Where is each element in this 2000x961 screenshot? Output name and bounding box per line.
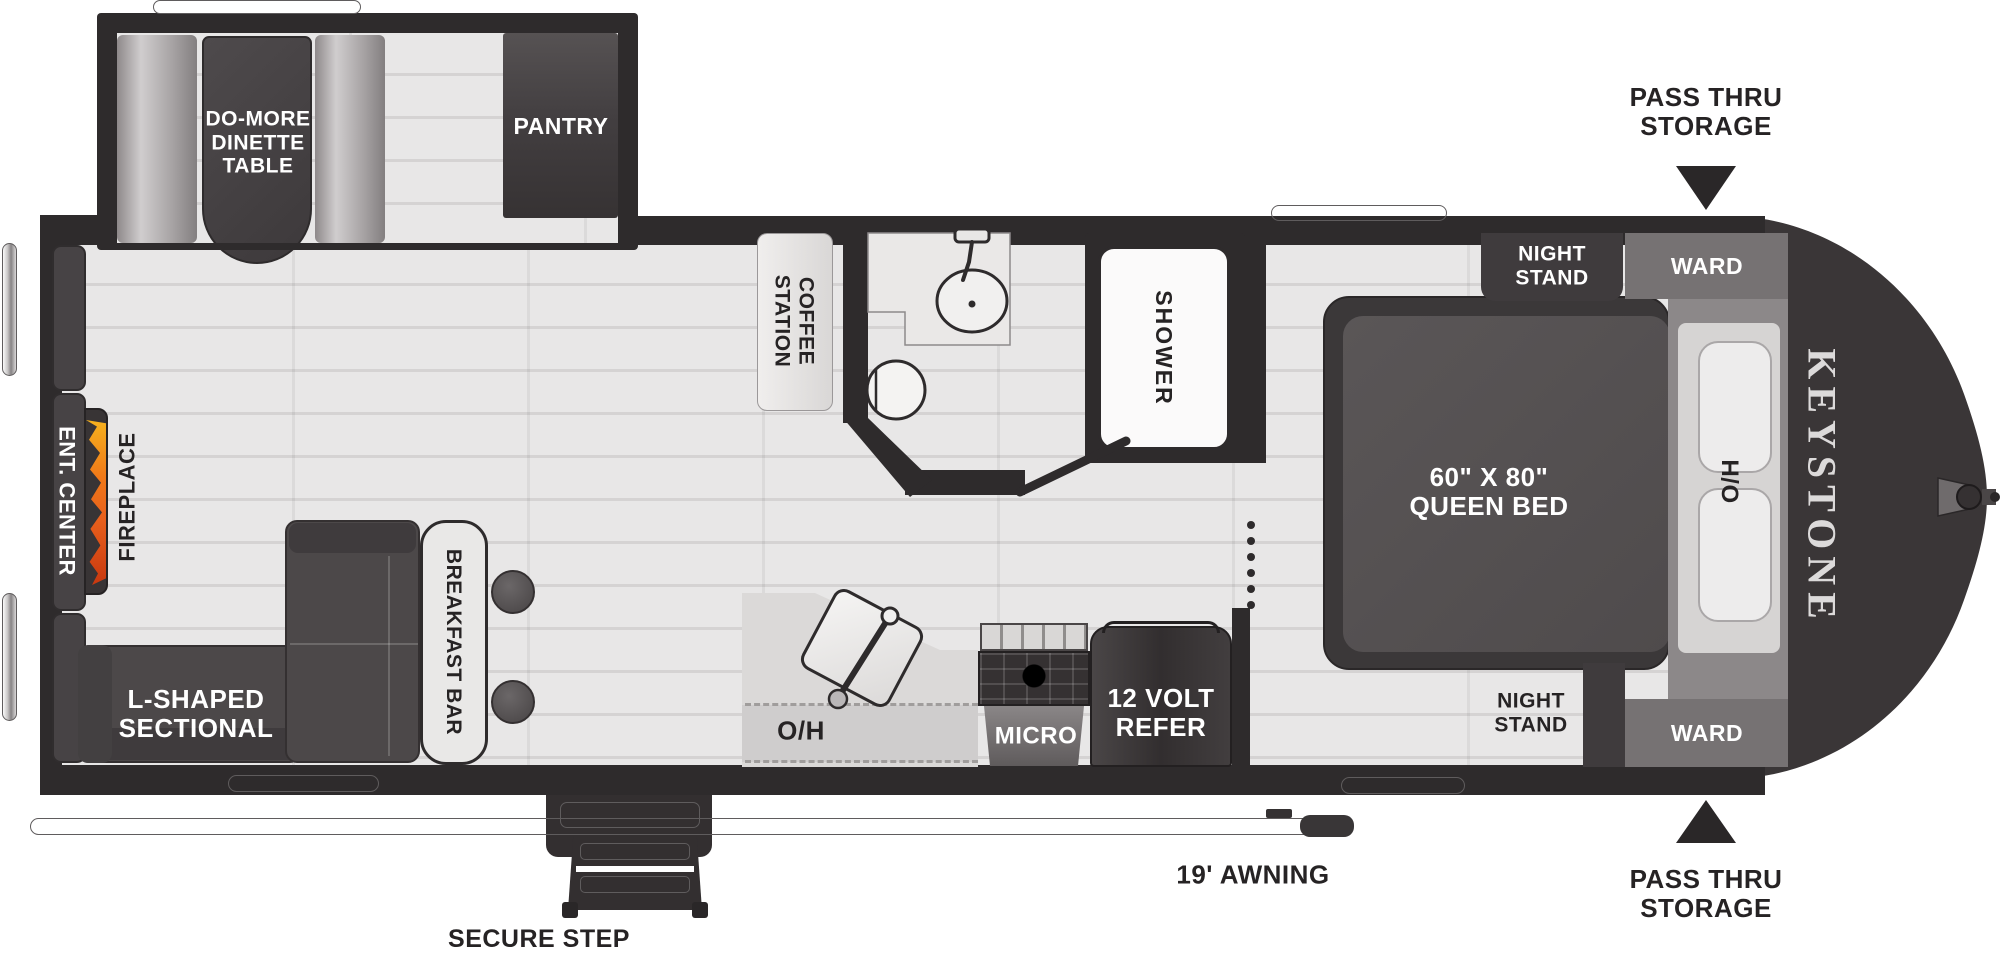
overhead-kitchen-label: O/H — [777, 716, 825, 745]
fireplace-label: FIREPLACE — [116, 432, 141, 561]
breakfast-bar-label: BREAKFAST BAR — [441, 549, 465, 735]
rv-floorplan-canvas: DO-MOREDINETTETABLE PANTRY COFFEESTATION… — [0, 0, 2000, 961]
night-stand-top-label: NIGHTSTAND — [1515, 242, 1588, 289]
night-stand-bottom-label: NIGHTSTAND — [1494, 689, 1567, 736]
ward-bottom-label: WARD — [1671, 721, 1743, 747]
refer-label: 12 VOLTREFER — [1107, 684, 1214, 742]
queen-bed-label: 60" X 80"QUEEN BED — [1409, 463, 1568, 521]
pantry-label: PANTRY — [514, 114, 609, 140]
pass-thru-arrow-down-icon — [1676, 166, 1736, 210]
brand-logo: KEYSTONE — [1799, 348, 1844, 626]
secure-step-label: SECURE STEP — [448, 925, 630, 953]
pass-thru-arrow-up-icon — [1676, 800, 1736, 843]
ent-center-label: ENT. CENTER — [54, 426, 79, 576]
coffee-station-label: COFFEESTATION — [770, 275, 817, 368]
ward-top-label: WARD — [1671, 254, 1743, 280]
pass-thru-top-label: PASS THRUSTORAGE — [1630, 83, 1783, 141]
overhead-bed-label: O/H — [1719, 459, 1746, 503]
awning-label: 19' AWNING — [1176, 860, 1329, 889]
shower-label: SHOWER — [1150, 290, 1176, 406]
pass-thru-bottom-label: PASS THRUSTORAGE — [1630, 865, 1783, 923]
dinette-label: DO-MOREDINETTETABLE — [206, 108, 311, 179]
micro-label: MICRO — [995, 724, 1078, 751]
sectional-label: L-SHAPEDSECTIONAL — [119, 685, 274, 743]
